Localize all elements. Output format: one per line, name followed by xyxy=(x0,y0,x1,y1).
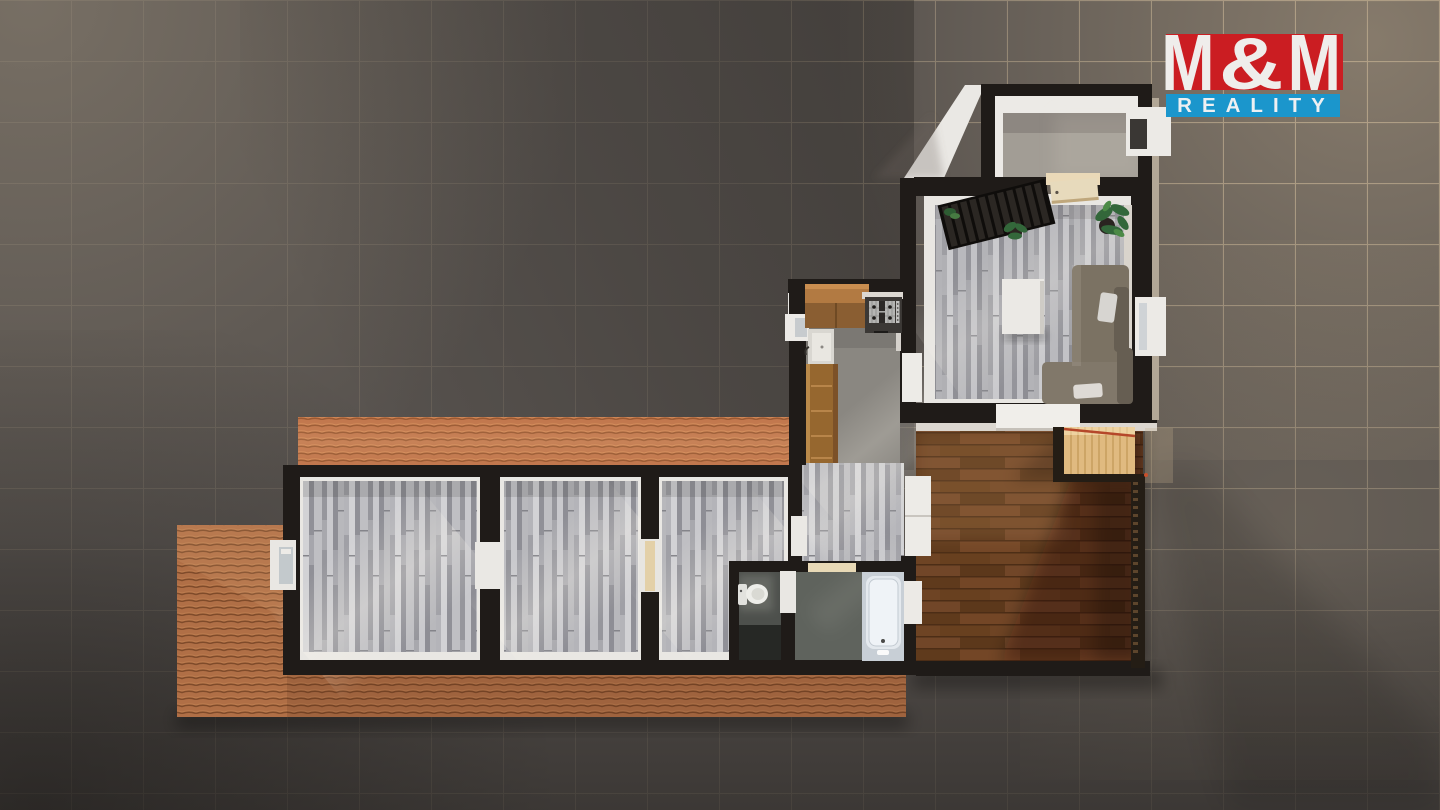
svg-text:&: & xyxy=(1219,23,1283,105)
svg-text:REALITY: REALITY xyxy=(1177,94,1335,117)
